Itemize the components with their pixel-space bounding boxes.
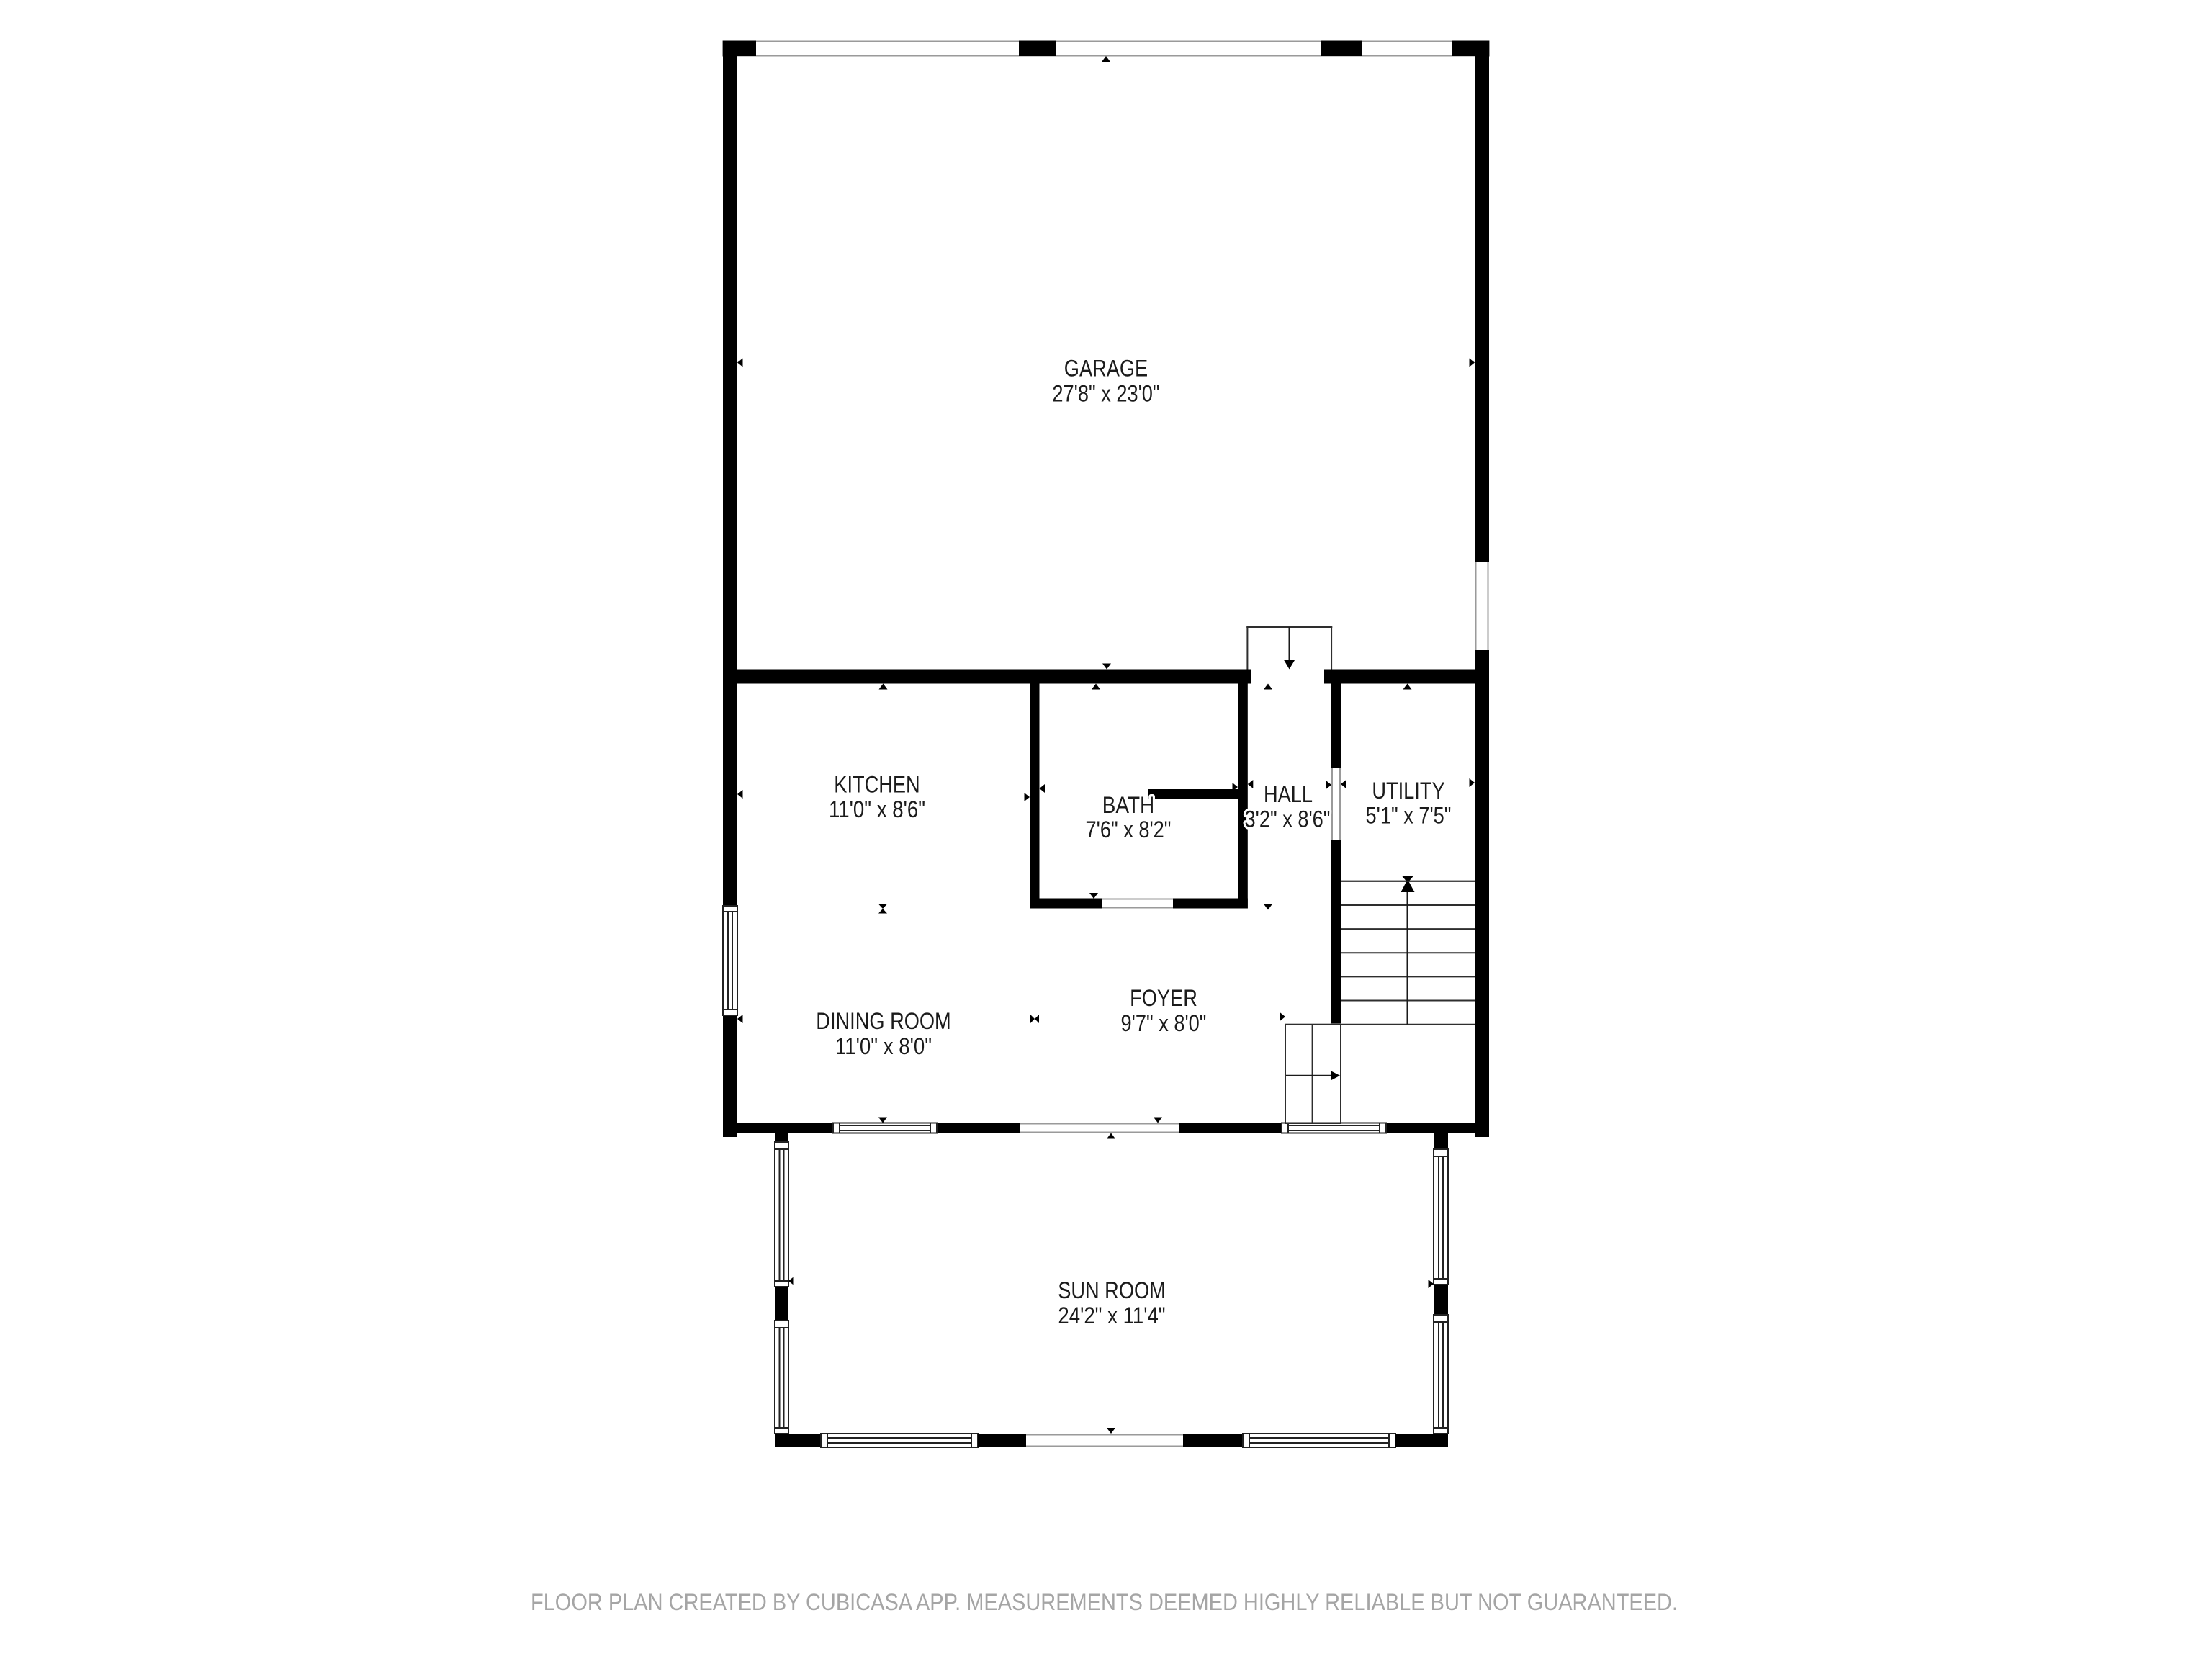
svg-text:GARAGE: GARAGE	[1064, 356, 1148, 382]
svg-text:FLOOR PLAN CREATED BY CUBICASA: FLOOR PLAN CREATED BY CUBICASA APP. MEAS…	[531, 1589, 1678, 1615]
svg-text:24'2" x 11'4": 24'2" x 11'4"	[1058, 1303, 1165, 1328]
svg-text:3'2" x 8'6": 3'2" x 8'6"	[1245, 806, 1331, 832]
svg-text:9'7" x 8'0": 9'7" x 8'0"	[1121, 1010, 1207, 1036]
svg-text:UTILITY: UTILITY	[1372, 778, 1444, 804]
svg-text:BATH: BATH	[1102, 792, 1155, 818]
svg-text:HALL: HALL	[1264, 781, 1313, 807]
svg-text:SUN ROOM: SUN ROOM	[1058, 1277, 1166, 1303]
svg-text:11'0" x 8'0": 11'0" x 8'0"	[835, 1033, 932, 1059]
svg-text:DINING ROOM: DINING ROOM	[816, 1008, 950, 1034]
svg-text:5'1" x 7'5": 5'1" x 7'5"	[1366, 803, 1452, 829]
svg-text:KITCHEN: KITCHEN	[834, 772, 920, 798]
svg-text:27'8" x 23'0": 27'8" x 23'0"	[1052, 381, 1159, 407]
svg-text:FOYER: FOYER	[1130, 985, 1197, 1011]
svg-text:11'0" x 8'6": 11'0" x 8'6"	[829, 796, 925, 822]
svg-text:7'6" x 8'2": 7'6" x 8'2"	[1086, 817, 1172, 842]
